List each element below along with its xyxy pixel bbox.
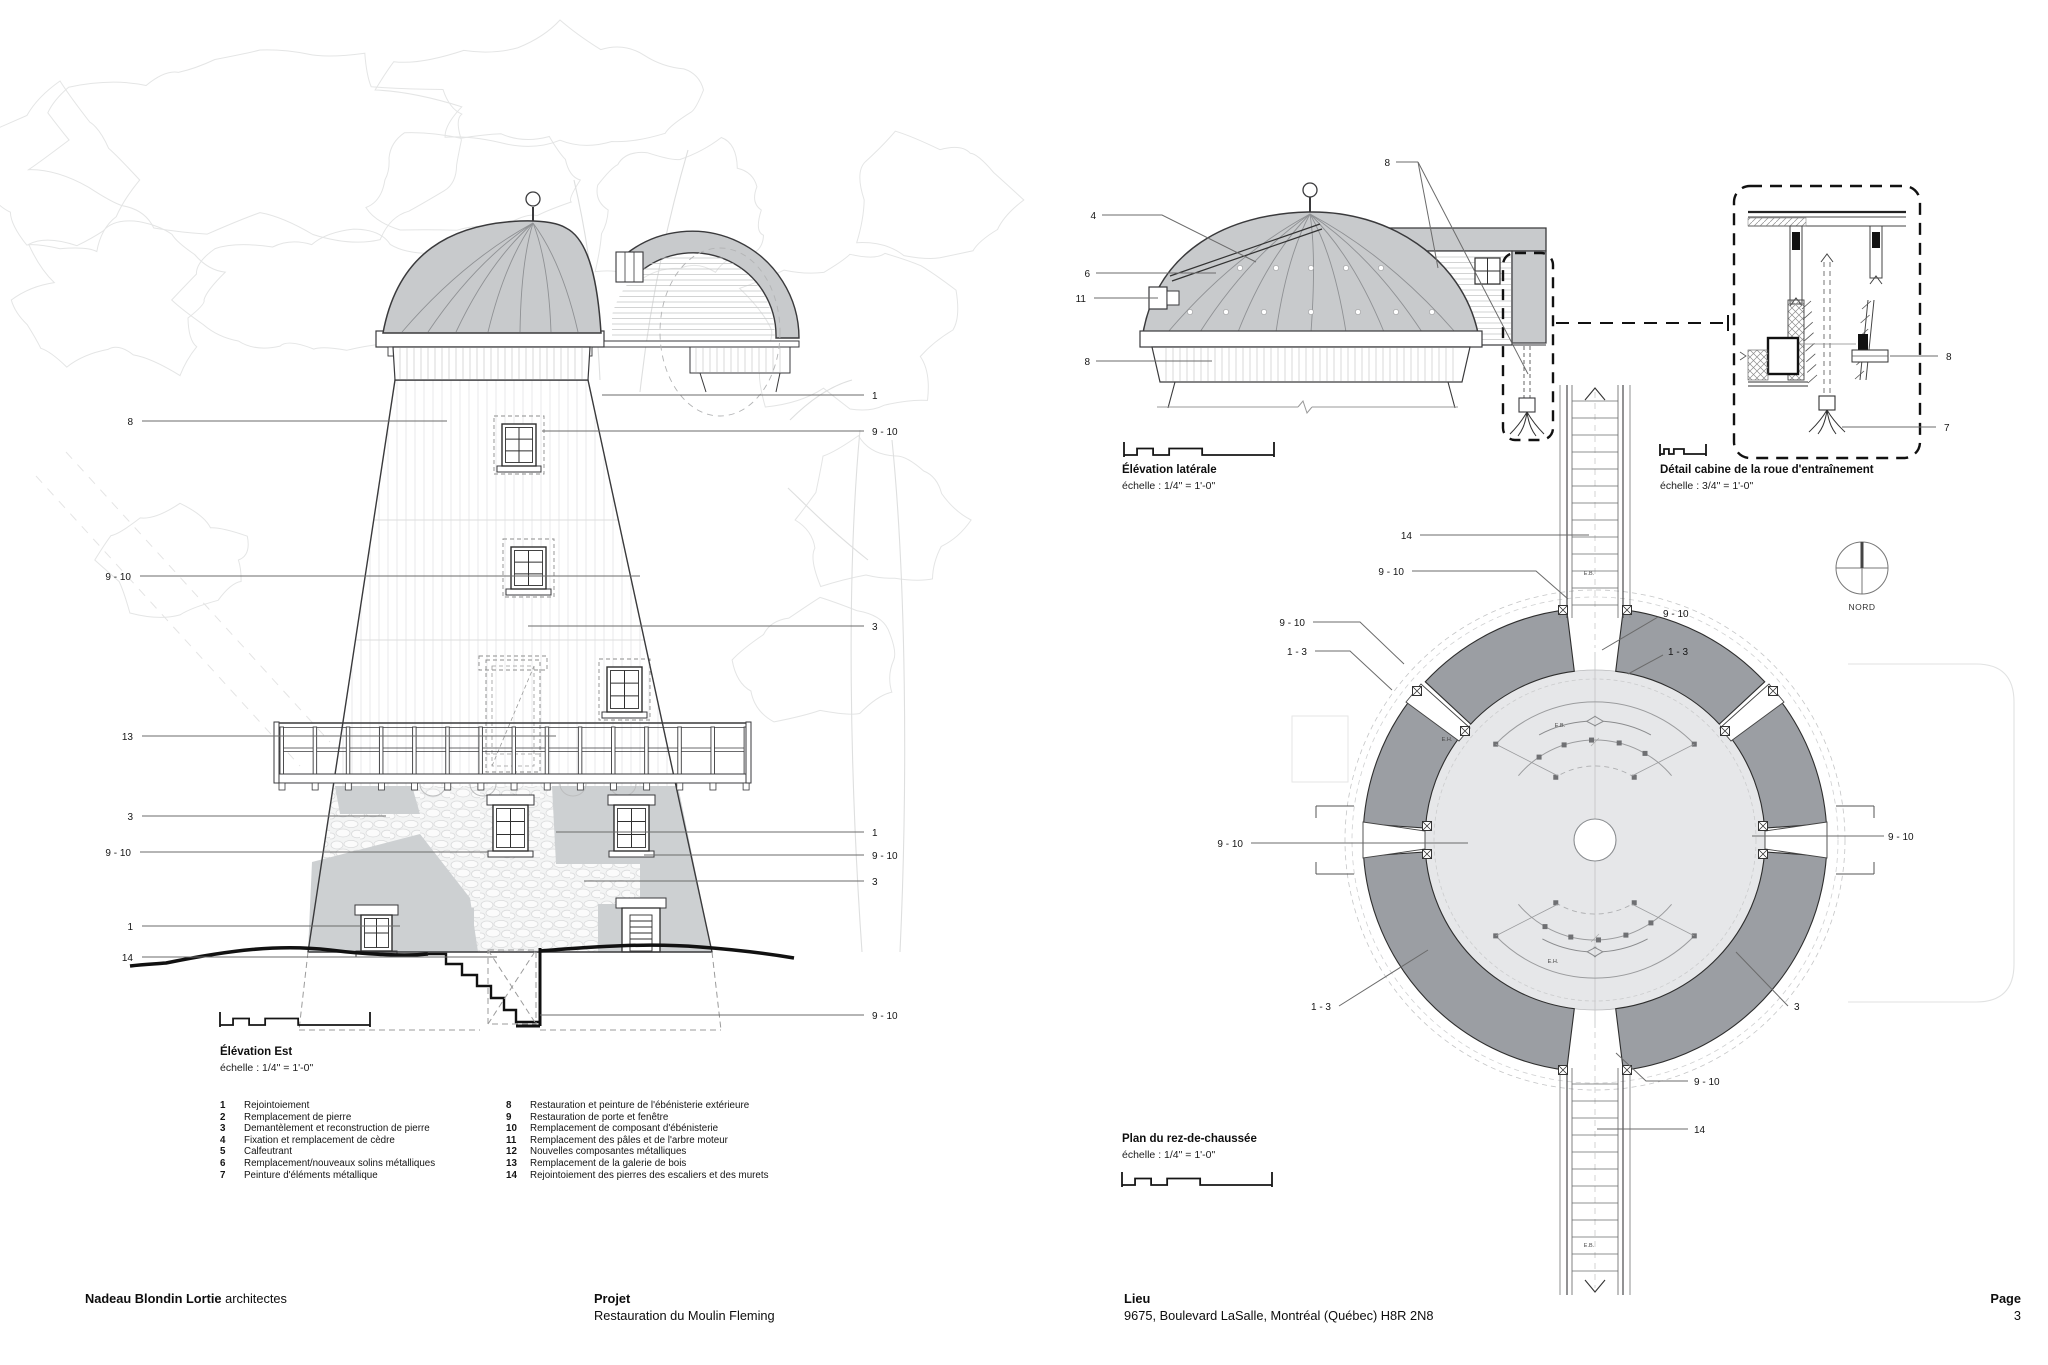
footer-firm: Nadeau Blondin Lortie architectes xyxy=(85,1291,287,1308)
jamb-block xyxy=(1759,850,1768,859)
stair-direction-label: E.H. xyxy=(1442,737,1453,743)
tree-trunk-sketch xyxy=(851,430,862,952)
east-elevation-title: Élévation Est xyxy=(220,1046,313,1059)
jamb-block xyxy=(1769,687,1778,696)
legend-item-label: Rejointoiement des pierres des escaliers… xyxy=(530,1170,769,1182)
footer-location: Lieu 9675, Boulevard LaSalle, Montréal (… xyxy=(1124,1291,1433,1324)
annex-vault-band xyxy=(626,231,799,338)
ground-floor-plan-drawing: NORDE.B.E.B.E.H.E.B.E.H.149 - 109 - 101 … xyxy=(1217,385,2014,1295)
callout-label: 9 - 10 xyxy=(1279,618,1305,629)
callout-label: 1 xyxy=(872,391,878,402)
legend-item-number: 10 xyxy=(506,1123,530,1135)
drawing-sheet: 89 - 101339 - 1011419 - 10319 - 1039 - 1… xyxy=(0,0,2048,1365)
callout-label: 3 xyxy=(1794,1002,1800,1013)
legend-item: 13Remplacement de la galerie de bois xyxy=(506,1158,769,1170)
finial xyxy=(526,192,540,206)
exterior-stair xyxy=(428,954,540,1022)
callout-label: 9 - 10 xyxy=(1888,832,1914,843)
legend-item-label: Remplacement de la galerie de bois xyxy=(530,1158,686,1170)
tree-trunk-sketch xyxy=(640,150,688,392)
legend-item-label: Peinture d'éléments métallique xyxy=(244,1170,378,1182)
east-elevation-title-block: Élévation Est échelle : 1/4" = 1'-0" xyxy=(220,1046,313,1075)
callout-label: 9 - 10 xyxy=(872,1011,898,1022)
callout-label: 8 xyxy=(1084,357,1090,368)
callout-label: 14 xyxy=(1401,531,1413,542)
jamb-block xyxy=(1461,727,1470,736)
legend-item-label: Remplacement de composant d'ébénisterie xyxy=(530,1123,718,1135)
legend-item-number: 12 xyxy=(506,1146,530,1158)
page-number: 3 xyxy=(1821,1308,2021,1325)
legend-item-number: 5 xyxy=(220,1146,244,1158)
jamb-block xyxy=(1721,727,1730,736)
legend-item-label: Remplacement de pierre xyxy=(244,1112,351,1124)
window xyxy=(487,795,534,857)
page-label: Page xyxy=(1821,1291,2021,1308)
side-elevation-drawing: 846118 xyxy=(1076,158,1731,440)
callout-label: 1 - 3 xyxy=(1668,647,1688,658)
rope-tassel xyxy=(1809,410,1845,434)
north-label: NORD xyxy=(1848,602,1875,612)
legend-item-number: 2 xyxy=(220,1112,244,1124)
legend-item: 11Remplacement des pâles et de l'arbre m… xyxy=(506,1135,769,1147)
callout-label: 9 - 10 xyxy=(872,851,898,862)
legend-item-label: Calfeutrant xyxy=(244,1146,292,1158)
tree-trunk-sketch xyxy=(788,488,868,560)
scale-bar xyxy=(220,1012,370,1027)
context-annex-outline xyxy=(1848,664,2014,1002)
finial xyxy=(1303,183,1317,197)
jamb-block xyxy=(1759,822,1768,831)
legend-item-number: 9 xyxy=(506,1112,530,1124)
foundation-dashed xyxy=(299,950,721,1030)
legend-item-number: 11 xyxy=(506,1135,530,1147)
side-elevation-title: Élévation latérale xyxy=(1122,464,1217,477)
legend-item-number: 3 xyxy=(220,1123,244,1135)
legend-item-number: 14 xyxy=(506,1170,530,1182)
location-value: 9675, Boulevard LaSalle, Montréal (Québe… xyxy=(1124,1308,1433,1325)
side-elevation-title-block: Élévation latérale échelle : 1/4" = 1'-0… xyxy=(1122,464,1217,493)
detail-border xyxy=(1734,186,1920,458)
callout-label: 8 xyxy=(127,417,133,428)
legend-item-number: 4 xyxy=(220,1135,244,1147)
callout-label: 7 xyxy=(1944,423,1950,434)
tree-foliage-sketch xyxy=(375,20,703,146)
scale-bar xyxy=(1124,442,1274,457)
legend-item: 1Rejointoiement xyxy=(220,1100,435,1112)
side-elevation-scale: échelle : 1/4" = 1'-0" xyxy=(1122,480,1217,493)
legend-item: 12Nouvelles composantes métalliques xyxy=(506,1146,769,1158)
floor-plan-title: Plan du rez-de-chaussée xyxy=(1122,1133,1257,1146)
project-label: Projet xyxy=(594,1291,775,1308)
location-label: Lieu xyxy=(1124,1291,1433,1308)
callout-label: 9 - 10 xyxy=(872,427,898,438)
stone-repair-patch xyxy=(404,908,474,950)
legend-item: 6Remplacement/nouveaux solins métallique… xyxy=(220,1158,435,1170)
detail-title: Détail cabine de la roue d'entraînement xyxy=(1660,464,1874,477)
annex-hatch xyxy=(616,252,643,282)
legend-item: 14Rejointoiement des pierres des escalie… xyxy=(506,1170,769,1182)
tree-foliage-sketch xyxy=(95,503,248,617)
east-elevation-drawing: 89 - 101339 - 1011419 - 10319 - 1039 - 1… xyxy=(105,192,898,1030)
legend-item-label: Demantèlement et reconstruction de pierr… xyxy=(244,1123,430,1135)
window xyxy=(355,905,398,957)
tree-trunk-sketch xyxy=(892,440,905,952)
callout-label: 1 - 3 xyxy=(1287,647,1307,658)
callout-label: 8 xyxy=(1384,158,1390,169)
legend-item: 3Demantèlement et reconstruction de pier… xyxy=(220,1123,435,1135)
scale-bar xyxy=(1660,444,1706,456)
footer-project: Projet Restauration du Moulin Fleming xyxy=(594,1291,775,1324)
floor-plan-scale: échelle : 1/4" = 1'-0" xyxy=(1122,1149,1257,1162)
footer-page: Page 3 xyxy=(1821,1291,2021,1324)
leader-line xyxy=(1315,651,1392,690)
callout-label: 9 - 10 xyxy=(1217,839,1243,850)
legend-item-label: Restauration et peinture de l'ébénisteri… xyxy=(530,1100,749,1112)
drive-wheel-cabin-detail-drawing: 87 xyxy=(1734,186,1952,458)
east-elevation-scale: échelle : 1/4" = 1'-0" xyxy=(220,1062,313,1075)
stair-direction-label: E.H. xyxy=(1548,959,1559,965)
callout-label: 9 - 10 xyxy=(1694,1077,1720,1088)
callout-label: 14 xyxy=(122,953,134,964)
jamb-block xyxy=(1413,687,1422,696)
rope-tassel xyxy=(1510,412,1544,436)
floor-plan-title-block: Plan du rez-de-chaussée échelle : 1/4" =… xyxy=(1122,1133,1257,1162)
legend-item-number: 8 xyxy=(506,1100,530,1112)
jamb-block xyxy=(1423,850,1432,859)
detail-scale: échelle : 3/4" = 1'-0" xyxy=(1660,480,1874,493)
tree-foliage-sketch xyxy=(732,597,895,722)
legend-item: 7Peinture d'éléments métallique xyxy=(220,1170,435,1182)
firm-suffix: architectes xyxy=(222,1291,287,1306)
leader-line xyxy=(1313,622,1404,664)
callout-label: 9 - 10 xyxy=(1378,567,1404,578)
window xyxy=(599,659,650,720)
callout-label: 1 xyxy=(127,922,133,933)
callout-label: 1 - 3 xyxy=(1311,1002,1331,1013)
stair-direction-label: E.B. xyxy=(1555,723,1566,729)
tree-foliage-sketch xyxy=(29,50,462,242)
legend-column-1: 1Rejointoiement2Remplacement de pierre3D… xyxy=(220,1100,435,1181)
stair-direction-label: E.B. xyxy=(1584,571,1595,577)
stair-direction-label: E.B. xyxy=(1584,1243,1595,1249)
callout-label: 9 - 10 xyxy=(105,572,131,583)
beam-section xyxy=(1768,338,1798,374)
slope-reference-lines xyxy=(36,452,330,766)
jamb-block xyxy=(1559,606,1568,615)
legend-item-label: Restauration de porte et fenêtre xyxy=(530,1112,668,1124)
legend-column-2: 8Restauration et peinture de l'ébénister… xyxy=(506,1100,769,1181)
legend-item: 8Restauration et peinture de l'ébénister… xyxy=(506,1100,769,1112)
jamb-block xyxy=(1623,606,1632,615)
callout-label: 4 xyxy=(1090,211,1096,222)
jamb-block xyxy=(1423,822,1432,831)
callout-label: 13 xyxy=(122,732,134,743)
legend-item-number: 13 xyxy=(506,1158,530,1170)
tree-foliage-sketch xyxy=(795,436,971,587)
project-value: Restauration du Moulin Fleming xyxy=(594,1308,775,1325)
legend-item-number: 7 xyxy=(220,1170,244,1182)
legend-item: 9Restauration de porte et fenêtre xyxy=(506,1112,769,1124)
callout-label: 14 xyxy=(1694,1125,1706,1136)
jamb-block xyxy=(1559,1066,1568,1075)
legend-item-label: Fixation et remplacement de cèdre xyxy=(244,1135,395,1147)
legend-item-label: Rejointoiement xyxy=(244,1100,309,1112)
legend-item-number: 1 xyxy=(220,1100,244,1112)
tree-foliage-sketch xyxy=(857,131,1024,258)
detail-title-block: Détail cabine de la roue d'entraînement … xyxy=(1660,464,1874,493)
scale-bar xyxy=(1122,1172,1272,1187)
legend-item: 4Fixation et remplacement de cèdre xyxy=(220,1135,435,1147)
callout-label: 11 xyxy=(1076,294,1087,305)
center-post xyxy=(1574,819,1616,861)
legend-item-label: Remplacement/nouveaux solins métalliques xyxy=(244,1158,435,1170)
legend-item-label: Remplacement des pâles et de l'arbre mot… xyxy=(530,1135,728,1147)
callout-label: 3 xyxy=(872,877,878,888)
legend-item-number: 6 xyxy=(220,1158,244,1170)
tree-foliage-sketch xyxy=(0,81,140,252)
callout-label: 9 - 10 xyxy=(1663,609,1689,620)
window xyxy=(503,539,554,597)
legend-item-label: Nouvelles composantes métalliques xyxy=(530,1146,686,1158)
callout-label: 9 - 10 xyxy=(105,848,131,859)
north-compass: NORD xyxy=(1836,542,1888,612)
callout-label: 6 xyxy=(1084,269,1090,280)
callout-label: 3 xyxy=(127,812,133,823)
tree-foliage-sketch xyxy=(11,221,225,376)
callout-label: 1 xyxy=(872,828,878,839)
window xyxy=(608,795,655,857)
legend-item: 5Calfeutrant xyxy=(220,1146,435,1158)
callout-label: 3 xyxy=(872,622,878,633)
legend-item: 10Remplacement de composant d'ébénisteri… xyxy=(506,1123,769,1135)
window xyxy=(494,416,544,474)
legend-item: 2Remplacement de pierre xyxy=(220,1112,435,1124)
firm-name: Nadeau Blondin Lortie xyxy=(85,1291,222,1306)
callout-label: 8 xyxy=(1946,352,1952,363)
